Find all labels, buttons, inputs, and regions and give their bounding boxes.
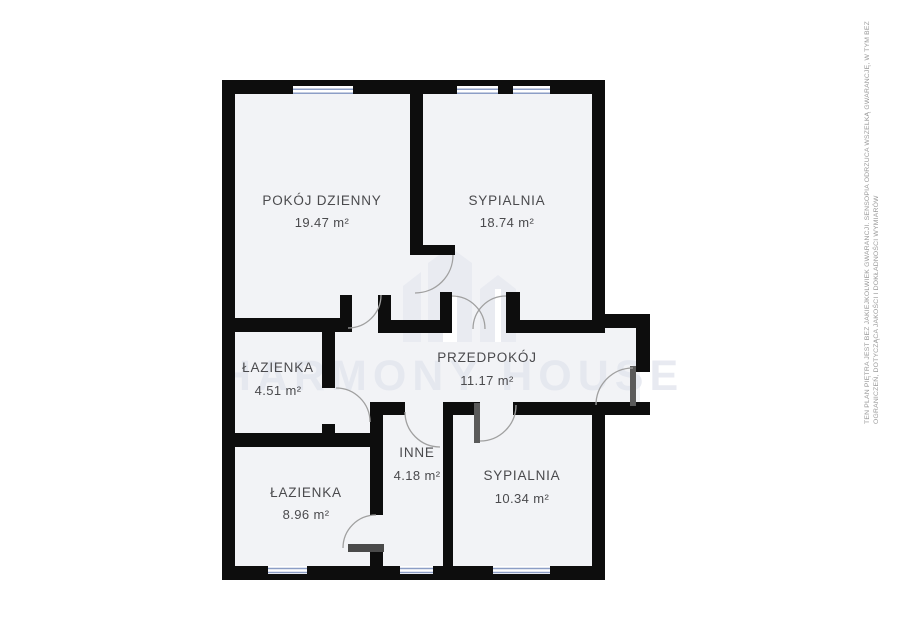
wall-outer-bottom [550, 566, 605, 580]
floor-plan-svg: HARMONY HOUSE [0, 0, 905, 640]
room-area-sypialnia-gorna: 18.74 m² [480, 215, 535, 230]
wall-outer-bottom [433, 566, 493, 580]
window [268, 566, 307, 580]
window [400, 566, 433, 580]
room-area-przedpokoj: 11.17 m² [460, 373, 514, 388]
wall-stub [410, 245, 455, 255]
room-label-przedpokoj: PRZEDPOKÓJ [437, 350, 537, 365]
disclaimer: TEN PLAN PIĘTRA JEST BEZ JAKIEJKOLWIEK G… [864, 21, 880, 424]
wall-hall-top [378, 320, 440, 333]
room-label-sypialnia-dolna: SYPIALNIA [484, 468, 561, 483]
disclaimer-line-2: OGRANICZEŃ, DOTYCZĄCA JAKOŚCI I DOKŁADNO… [871, 195, 880, 424]
room-label-lazienka-duza: ŁAZIENKA [270, 485, 342, 500]
door-leaf [474, 403, 480, 443]
wall-inne-top [370, 402, 405, 415]
wall-inne-bedroom-divider [443, 402, 453, 566]
wall-bedroom2-top [513, 402, 605, 415]
wall-outer-right-lower [592, 402, 605, 580]
room-area-pokoj-dzienny: 19.47 m² [295, 215, 350, 230]
wall-stub [440, 292, 452, 333]
room-area-inne: 4.18 m² [394, 468, 441, 483]
entrance-door-leaf [630, 366, 636, 406]
room-area-sypialnia-dolna: 10.34 m² [495, 491, 550, 506]
window [457, 80, 498, 94]
room-area-lazienka-duza: 8.96 m² [283, 507, 330, 522]
wall-outer-bottom [222, 566, 268, 580]
wall-bedroom1-bottom [512, 320, 605, 333]
room-label-sypialnia-gorna: SYPIALNIA [469, 193, 546, 208]
disclaimer-line-1: TEN PLAN PIĘTRA JEST BEZ JAKIEJKOLWIEK G… [864, 21, 871, 424]
window [513, 80, 550, 94]
wall-inne-left [370, 402, 383, 515]
wall-outer-right-upper [592, 80, 605, 328]
wall-bathroom1-bottom [235, 433, 383, 447]
room-label-pokoj-dzienny: POKÓJ DZIENNY [262, 193, 381, 208]
window [493, 566, 550, 580]
wall-bathroom1-right [322, 318, 335, 388]
wall-jog [340, 295, 352, 332]
room-area-lazienka-mala: 4.51 m² [255, 383, 302, 398]
floor-plan-page: HARMONY HOUSE [0, 0, 905, 640]
window [293, 80, 353, 94]
wall-top-rooms-divider [410, 94, 423, 248]
room-label-inne: INNE [399, 445, 434, 460]
wall-outer-left [222, 80, 235, 580]
window-mullion [498, 80, 513, 94]
wall-outer-top [353, 80, 457, 94]
wall-outer-bottom [307, 566, 400, 580]
wall-partition-stub [348, 544, 384, 552]
room-label-lazienka-mala: ŁAZIENKA [242, 360, 314, 375]
wall-outer-top [222, 80, 293, 94]
wall-extension-right [636, 314, 650, 372]
